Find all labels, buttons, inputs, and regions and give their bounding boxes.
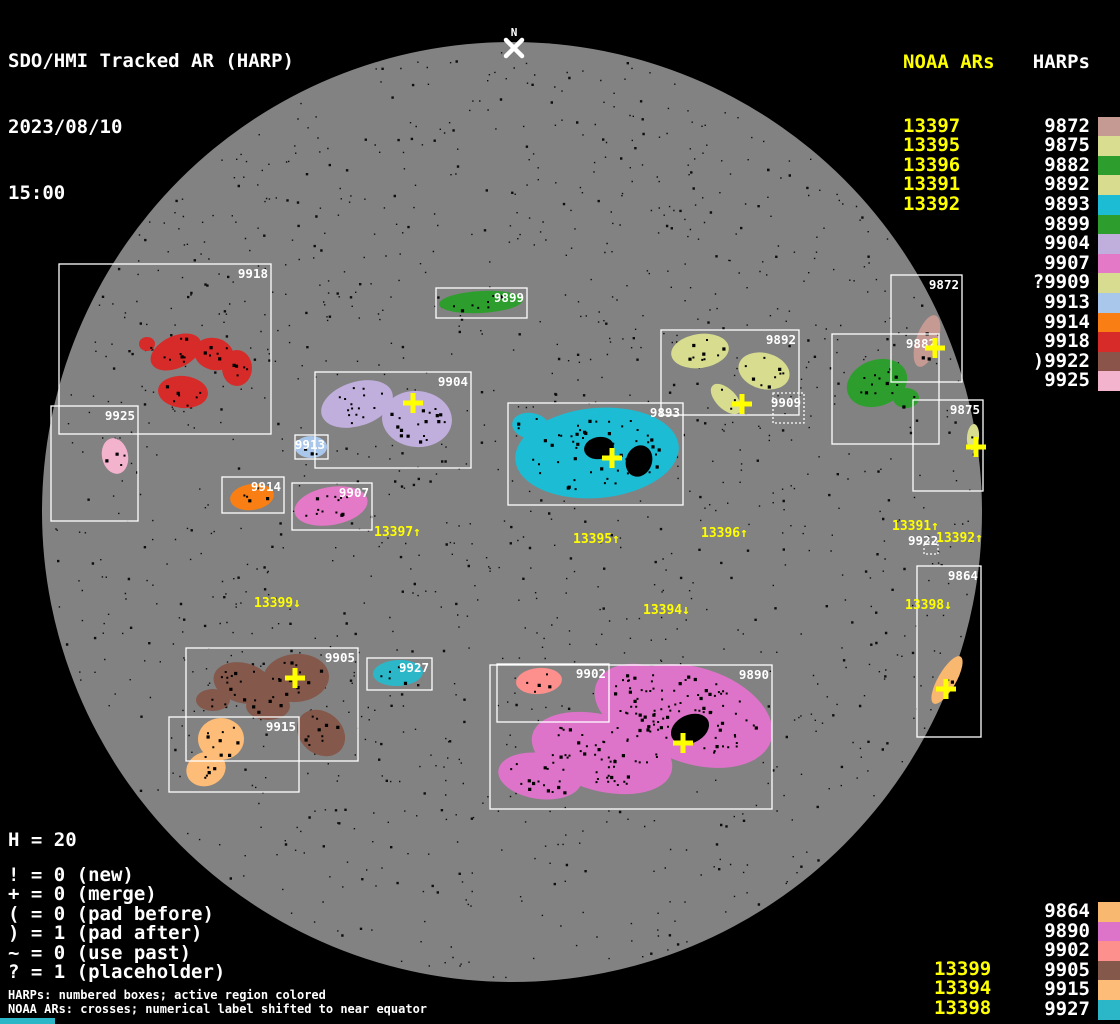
harp-list-row: 9875 — [1026, 136, 1120, 156]
harp-number: 9902 — [1026, 941, 1098, 961]
harp-tracker-plot: 9918992599049913991499079899989398929909… — [0, 0, 1120, 1024]
noaa-ar-label: 13394↓ — [643, 603, 690, 618]
harp-floating-label: 9922 — [908, 533, 938, 548]
observation-date: 2023/08/10 — [8, 116, 294, 138]
harp-list-row: 9913 — [1026, 293, 1120, 313]
legend-line: ) = 1 (pad after) — [8, 924, 225, 943]
harp-color-swatch — [1098, 195, 1120, 215]
swatch-spacer — [1098, 53, 1120, 73]
harp-color-swatch — [1098, 1000, 1120, 1020]
harp-number: 9918 — [1026, 332, 1098, 352]
harp-list-row: 9893 — [1026, 195, 1120, 215]
harp-color-swatch — [1098, 313, 1120, 333]
noaa-ar-label: 13396↑ — [701, 526, 748, 541]
harp-number: 9925 — [1026, 371, 1098, 391]
harp-box-label: 9907 — [339, 485, 369, 500]
harp-box-label: 9893 — [650, 405, 680, 420]
harp-list-row: 9902 — [1026, 941, 1120, 961]
harp-color-swatch — [1098, 273, 1120, 293]
harp-box-label: 9872 — [929, 277, 959, 292]
harp-box-label: 9892 — [766, 332, 796, 347]
harp-box-label: 9913 — [295, 437, 325, 452]
harp-color-swatch — [1098, 961, 1120, 981]
noaa-ar-item: 13392 — [903, 195, 995, 215]
legend-line: ? = 1 (placeholder) — [8, 963, 225, 982]
harp-color-swatch — [1098, 371, 1120, 391]
observation-time: 15:00 — [8, 182, 294, 204]
noaa-ar-label: 13391↑ — [892, 519, 939, 534]
harp-number: 9913 — [1026, 293, 1098, 313]
harp-color-swatch — [1098, 175, 1120, 195]
noaa-ar-header: NOAA ARs — [903, 53, 995, 73]
harp-color-swatch — [1098, 254, 1120, 274]
harp-list-row: ?9909 — [1026, 273, 1120, 293]
harp-list-row: 9918 — [1026, 332, 1120, 352]
harp-color-swatch — [1098, 156, 1120, 176]
harp-color-swatch — [1098, 215, 1120, 235]
harp-box-label: 9909 — [771, 395, 801, 410]
harp-box-label: 9927 — [399, 660, 429, 675]
harp-number: 9904 — [1026, 234, 1098, 254]
harp-number: 9927 — [1026, 1000, 1098, 1020]
harp-box-label: 9864 — [948, 568, 978, 583]
harp-color-swatch — [1098, 941, 1120, 961]
harp-box-label: 9875 — [950, 402, 980, 417]
harp-box-label: 9890 — [739, 667, 769, 682]
page-title: SDO/HMI Tracked AR (HARP) — [8, 50, 294, 72]
harp-number: 9864 — [1026, 902, 1098, 922]
harp-number: 9875 — [1026, 136, 1098, 156]
harp-box-label: 9902 — [576, 666, 606, 681]
harp-list-top: HARPs 98729875988298929893989999049907?9… — [1026, 9, 1120, 391]
harp-number: ?9909 — [1026, 273, 1098, 293]
harp-list-header-row: HARPs — [1026, 53, 1120, 73]
noaa-ar-label: 13397↑ — [374, 525, 421, 540]
harp-list-row: 9864 — [1026, 902, 1120, 922]
footnote-line: HARPs: numbered boxes; active region col… — [8, 989, 427, 1003]
noaa-ar-label: 13392↑ — [936, 531, 983, 546]
noaa-ar-item: 13391 — [903, 175, 995, 195]
noaa-ar-list-bottom: 133991339413398 — [934, 960, 991, 1018]
noaa-ar-label: 13398↓ — [905, 598, 952, 613]
footnote-line: NOAA ARs: crosses; numerical label shift… — [8, 1003, 427, 1017]
harp-box-label: 9914 — [251, 479, 281, 494]
harp-color-swatch — [1098, 980, 1120, 1000]
legend-line: + = 0 (merge) — [8, 885, 225, 904]
harp-box-label: 9918 — [238, 266, 268, 281]
noaa-ar-label: 13395↑ — [573, 532, 620, 547]
title-block: SDO/HMI Tracked AR (HARP) 2023/08/10 15:… — [8, 6, 294, 248]
harp-color-swatch — [1098, 902, 1120, 922]
harp-box-label: 9925 — [105, 408, 135, 423]
sunspot-speckles — [971, 436, 973, 438]
harp-count: H = 20 — [8, 829, 77, 851]
harp-color-swatch — [1098, 234, 1120, 254]
footnotes: HARPs: numbered boxes; active region col… — [8, 989, 427, 1016]
noaa-ar-item: 13398 — [934, 999, 991, 1018]
flag-legend: ! = 0 (new)+ = 0 (merge)( = 0 (pad befor… — [8, 866, 225, 982]
noaa-ar-item: 13395 — [903, 136, 995, 156]
harp-color-swatch — [1098, 117, 1120, 137]
harp-color-swatch — [1098, 293, 1120, 313]
harp-color-swatch — [1098, 352, 1120, 372]
harp-box-label: 9899 — [494, 290, 524, 305]
harp-color-swatch — [1098, 922, 1120, 942]
harp-color-swatch — [1098, 136, 1120, 156]
harp-list-header: HARPs — [1026, 53, 1098, 73]
noaa-ar-label: 13399↓ — [254, 596, 301, 611]
harp-list-row: 9927 — [1026, 1000, 1120, 1020]
harp-list-row: 9925 — [1026, 371, 1120, 391]
north-label: N — [511, 26, 518, 39]
harp-list-bottom: 986498909902990599159927 — [1026, 902, 1120, 1020]
partial-colorbar — [0, 1018, 55, 1024]
noaa-ar-item: 13394 — [934, 979, 991, 998]
harp-color-swatch — [1098, 332, 1120, 352]
harp-box-label: 9915 — [266, 719, 296, 734]
harp-list-row: 9904 — [1026, 234, 1120, 254]
noaa-ar-list-top: NOAA ARs 1339713395133961339113392 — [903, 9, 995, 214]
harp-number: 9893 — [1026, 195, 1098, 215]
active-region-blob — [139, 337, 155, 351]
harp-box-label: 9904 — [438, 374, 468, 389]
harp-box-label: 9905 — [325, 650, 355, 665]
active-region-blob — [222, 350, 252, 386]
